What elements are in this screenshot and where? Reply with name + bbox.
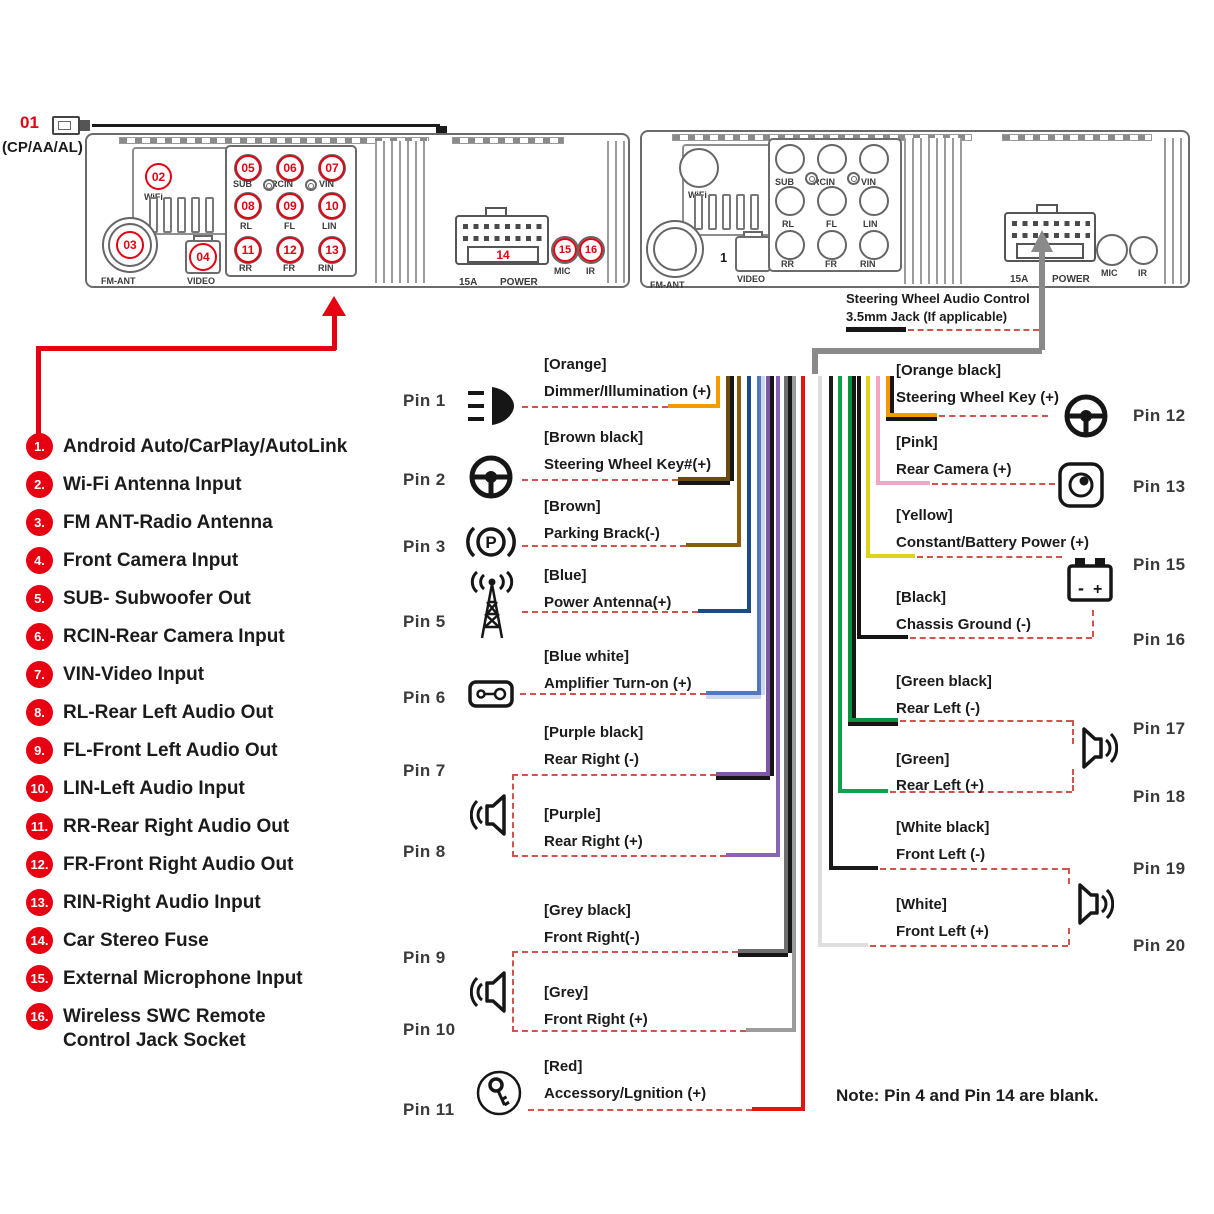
mic-label: MIC: [554, 266, 571, 276]
wire-pin12-arm: [886, 413, 937, 417]
pin15-label: Pin 15: [1133, 555, 1185, 575]
wire-pin17-vertical: [848, 376, 852, 722]
video-index: 1: [720, 250, 727, 265]
wire-pin2-vertical: [726, 376, 730, 481]
callout-05-sub: 05: [235, 155, 261, 181]
video-label: VIDEO: [737, 274, 765, 284]
ir-jack: [1129, 236, 1158, 265]
pin8-label: Pin 8: [403, 842, 446, 862]
dashed-leader: [512, 1030, 746, 1032]
rca-jack: [859, 186, 889, 216]
pin6-label: Pin 6: [403, 688, 446, 708]
wire-pin13-arm: [876, 481, 930, 485]
wifi-jack: [679, 148, 719, 188]
port-label-vin: VIN: [319, 179, 334, 189]
connector-slot: [736, 194, 745, 230]
wire-pin8-arm: [726, 853, 780, 857]
rca-jack: [859, 144, 889, 174]
connector-slot: [694, 194, 703, 230]
dashed-leader: [917, 556, 1062, 558]
heatsink-fins: [1164, 138, 1186, 284]
legend-text: Front Camera Input: [63, 550, 238, 572]
dashed-leader: [512, 855, 726, 857]
connector-slot: [750, 194, 759, 230]
swc-jack-bar: [846, 327, 906, 332]
pin7-color: [Purple black]: [544, 724, 643, 741]
wire-pin10-vertical: [792, 376, 796, 1032]
dashed-leader: [528, 1109, 752, 1111]
pin7-label: Pin 7: [403, 761, 446, 781]
ir-label: IR: [1138, 268, 1147, 278]
port-label-fr: FR: [825, 259, 837, 269]
wire-pin8-vertical: [776, 376, 780, 857]
pin13-function: Rear Camera (+): [896, 461, 1011, 478]
wire-pin6-arm: [706, 691, 761, 695]
pin3-label: Pin 3: [403, 537, 446, 557]
legend-badge: 5.: [26, 585, 53, 612]
pin17-label: Pin 17: [1133, 719, 1185, 739]
wire-pin15-vertical: [866, 376, 870, 558]
port-label-lin: LIN: [322, 221, 337, 231]
dashed-leader: [512, 951, 738, 953]
legend-text: Wireless SWC Remote: [63, 1006, 266, 1028]
legend-badge: 15.: [26, 965, 53, 992]
pin1-color: [Orange]: [544, 356, 607, 373]
legend-text: RIN-Right Audio Input: [63, 892, 261, 914]
heatsink-fins: [607, 141, 627, 283]
speaker-icon-pin17-18: [1070, 720, 1118, 776]
vent-strip: [1002, 134, 1152, 141]
swc-arrow-up-icon: [1031, 230, 1053, 252]
wire-pin5-arm: [698, 609, 751, 613]
swc-lead-vertical: [1039, 250, 1045, 350]
callout-01-caption: (CP/AA/AL): [2, 139, 83, 156]
rca-jack: [859, 230, 889, 260]
head-unit-rear-2: WiFi FM-ANT 1 VIDEO SUB RCIN VIN RL FL L…: [640, 130, 1190, 288]
trim-screw: [305, 179, 317, 191]
pin3-function: Parking Brack(-): [544, 525, 660, 542]
rca-jack: [817, 144, 847, 174]
legend-badge: 12.: [26, 851, 53, 878]
heatsink-fins: [375, 141, 431, 283]
wire-pin17-arm: [848, 718, 898, 722]
pin13-label: Pin 13: [1133, 477, 1185, 497]
legend-badge: 6.: [26, 623, 53, 650]
rca-jack: [817, 186, 847, 216]
wire-pin19-vertical: [829, 376, 833, 870]
legend-text: SUB- Subwoofer Out: [63, 588, 251, 610]
legend-text: FR-Front Right Audio Out: [63, 854, 293, 876]
svg-text:P: P: [485, 533, 496, 552]
head-unit-rear-1: 02 WiFi 03 FM-ANT 04 VIDEO 05 06 07 SUB …: [85, 133, 630, 288]
pin10-color: [Grey]: [544, 984, 588, 1001]
dashed-leader: [512, 774, 716, 776]
pin6-color: [Blue white]: [544, 648, 629, 665]
wire-pin20-vertical: [818, 376, 822, 947]
wire-pin12-vertical: [886, 376, 890, 417]
legend-text: Car Stereo Fuse: [63, 930, 209, 952]
wire-pin6-vertical: [757, 376, 761, 695]
fm-ant-label: FM-ANT: [650, 280, 685, 290]
connector-slot: [722, 194, 731, 230]
callout-14-fuse: 14: [496, 248, 509, 262]
wire-pin9-vertical: [784, 376, 788, 953]
pin16-color: [Black]: [896, 589, 946, 606]
battery-icon: - +: [1064, 550, 1116, 608]
wire-pin16-vertical: [857, 376, 861, 639]
callout-16-ir: 16: [579, 238, 603, 262]
steering-wheel-icon-pin12: [1060, 391, 1112, 441]
steering-wheel-icon: [466, 452, 516, 502]
legend-badge: 9.: [26, 737, 53, 764]
pin15-function: Constant/Battery Power (+): [896, 534, 1089, 551]
trim-screw: [805, 172, 818, 185]
pin20-label: Pin 20: [1133, 936, 1185, 956]
callout-15-mic: 15: [553, 238, 577, 262]
pin13-color: [Pink]: [896, 434, 938, 451]
callout-12-fr: 12: [277, 237, 303, 263]
headlight-icon: [462, 383, 518, 429]
connector-pin-row: [463, 236, 543, 241]
wire-pin20-arm: [818, 943, 868, 947]
pin2-color: [Brown black]: [544, 429, 643, 446]
port-label-fr: FR: [283, 263, 295, 273]
power-label: POWER: [1052, 274, 1090, 285]
usb-cable-line: [92, 124, 440, 127]
legend-badge: 14.: [26, 927, 53, 954]
pin1-label: Pin 1: [403, 391, 446, 411]
callout-09-fl: 09: [277, 193, 303, 219]
pin19-function: Front Left (-): [896, 846, 985, 863]
pin5-label: Pin 5: [403, 612, 446, 632]
svg-text:-: -: [1078, 578, 1084, 598]
heatsink-fins: [904, 138, 962, 284]
pin18-color: [Green]: [896, 751, 949, 768]
pin10-function: Front Right (+): [544, 1011, 648, 1028]
pin5-color: [Blue]: [544, 567, 587, 584]
connector-slot: [191, 197, 200, 233]
video-jack: [735, 236, 771, 272]
swc-lead-stub: [812, 348, 818, 374]
pin12-label: Pin 12: [1133, 406, 1185, 426]
parking-brake-icon: P: [464, 517, 518, 567]
trim-screw: [263, 179, 275, 191]
legend-text: External Microphone Input: [63, 968, 303, 990]
camera-icon: [1056, 458, 1106, 510]
wire-pin19-arm: [829, 866, 878, 870]
pin2-label: Pin 2: [403, 470, 446, 490]
wire-pin15-arm: [866, 554, 915, 558]
wiring-diagram: 01 (CP/AA/AL) 02 WiFi 03 FM-ANT 04 VIDEO…: [0, 0, 1214, 1214]
port-label-fl: FL: [826, 219, 837, 229]
legend-badge: 2.: [26, 471, 53, 498]
legend-badge: 10.: [26, 775, 53, 802]
pin18-label: Pin 18: [1133, 787, 1185, 807]
rca-jack: [775, 144, 805, 174]
callout-13-rin: 13: [319, 237, 345, 263]
pin10-label: Pin 10: [403, 1020, 455, 1040]
callout-01-number: 01: [20, 113, 39, 133]
callout-06-rcin: 06: [277, 155, 303, 181]
swc-dashed-line: [908, 329, 1039, 331]
wire-pin7-arm: [716, 772, 770, 776]
pin2-function: Steering Wheel Key#(+): [544, 456, 711, 473]
pin11-function: Accessory/Lgnition (+): [544, 1085, 706, 1102]
power-label: POWER: [500, 277, 538, 288]
swc-lead-horizontal: [812, 348, 1042, 354]
connector-slot: [205, 197, 214, 233]
wire-pin13-vertical: [876, 376, 880, 485]
wire-pin11-vertical: [801, 376, 805, 1111]
wire-pin9-arm: [738, 949, 788, 953]
wire-pin7-vertical: [766, 376, 770, 776]
port-label-lin: LIN: [863, 219, 878, 229]
legend-text: FM ANT-Radio Antenna: [63, 512, 273, 534]
pin7-function: Rear Right (-): [544, 751, 639, 768]
port-label-rin: RIN: [860, 259, 876, 269]
legend-badge: 1.: [26, 433, 53, 460]
pin12-color: [Orange black]: [896, 362, 1001, 379]
speaker-icon-pin9-10: [470, 965, 518, 1019]
fuse-slot: 14: [467, 246, 539, 263]
callout-02-wifi: 02: [145, 163, 172, 190]
port-label-sub: SUB: [233, 179, 252, 189]
wire-pin3-vertical: [737, 376, 741, 547]
connector-slot: [163, 197, 172, 233]
fuse-amp-label: 15A: [1010, 274, 1028, 285]
pin9-color: [Grey black]: [544, 902, 631, 919]
pin19-label: Pin 19: [1133, 859, 1185, 879]
legend-badge: 4.: [26, 547, 53, 574]
pin12-function: Steering Wheel Key (+): [896, 389, 1059, 406]
pin3-color: [Brown]: [544, 498, 601, 515]
port-label-rr: RR: [781, 259, 794, 269]
dashed-leader: [932, 483, 1055, 485]
dashed-leader: [522, 479, 678, 481]
legend-text: Android Auto/CarPlay/AutoLink: [63, 436, 347, 458]
ignition-key-icon: [474, 1068, 524, 1118]
pin9-function: Front Right(-): [544, 929, 640, 946]
legend-badge: 13.: [26, 889, 53, 916]
port-label-fl: FL: [284, 221, 295, 231]
pin17-color: [Green black]: [896, 673, 992, 690]
dashed-leader: [900, 720, 1072, 722]
pin16-label: Pin 16: [1133, 630, 1185, 650]
wire-pin16-arm: [857, 635, 908, 639]
speaker-icon-pin7-8: [470, 788, 518, 842]
connector-slot: [177, 197, 186, 233]
legend-line-horizontal: [36, 346, 336, 351]
blank-pins-note: Note: Pin 4 and Pin 14 are blank.: [836, 1086, 1099, 1106]
legend-line-vertical: [36, 346, 41, 434]
pin11-label: Pin 11: [403, 1100, 455, 1120]
callout-11-rr: 11: [235, 237, 261, 263]
pin6-function: Amplifier Turn-on (+): [544, 675, 692, 692]
trim-screw: [847, 172, 860, 185]
usb-plug-icon-inner: [58, 121, 71, 130]
mic-jack: [1096, 234, 1128, 266]
svg-text:+: +: [1093, 581, 1102, 598]
dashed-connector: [1092, 610, 1094, 637]
pin16-function: Chassis Ground (-): [896, 616, 1031, 633]
wire-pin10-arm: [746, 1028, 796, 1032]
swc-note-line2: 3.5mm Jack (If applicable): [846, 309, 1007, 324]
legend-badge: 7.: [26, 661, 53, 688]
rca-jack: [775, 186, 805, 216]
dashed-leader: [910, 637, 1092, 639]
port-label-rl: RL: [782, 219, 794, 229]
dashed-leader: [520, 693, 706, 695]
legend-badge: 8.: [26, 699, 53, 726]
legend-text: RR-Rear Right Audio Out: [63, 816, 289, 838]
legend-badge: 16.: [26, 1003, 53, 1030]
pin1-function: Dimmer/Illumination (+): [544, 383, 711, 400]
legend-text: LIN-Left Audio Input: [63, 778, 245, 800]
fm-ant-label: FM-ANT: [101, 276, 136, 286]
pin20-function: Front Left (+): [896, 923, 989, 940]
legend-text: RL-Rear Left Audio Out: [63, 702, 273, 724]
dashed-leader: [870, 945, 1068, 947]
pin18-function: Rear Left (+): [896, 777, 984, 794]
pin11-color: [Red]: [544, 1058, 582, 1075]
pin9-label: Pin 9: [403, 948, 446, 968]
legend-text: VIN-Video Input: [63, 664, 204, 686]
amplifier-icon: [466, 674, 516, 714]
legend-badge: 3.: [26, 509, 53, 536]
usb-plug-tip: [80, 120, 90, 131]
vent-strip: [452, 137, 564, 144]
ir-label: IR: [586, 266, 595, 276]
pin8-function: Rear Right (+): [544, 833, 643, 850]
pin8-color: [Purple]: [544, 806, 601, 823]
dashed-leader: [880, 868, 1068, 870]
callout-03-fm-ant: 03: [116, 231, 144, 259]
dashed-leader: [522, 611, 698, 613]
fuse-amp-label: 15A: [459, 277, 477, 288]
pin17-function: Rear Left (-): [896, 700, 980, 717]
legend-text-line2: Control Jack Socket: [63, 1030, 246, 1052]
connector-slot: [708, 194, 717, 230]
legend-badge: 11.: [26, 813, 53, 840]
wire-pin18-arm: [838, 789, 888, 793]
legend-text: FL-Front Left Audio Out: [63, 740, 278, 762]
wire-pin2-arm: [678, 477, 730, 481]
rca-jack: [817, 230, 847, 260]
mic-label: MIC: [1101, 268, 1118, 278]
callout-04-video: 04: [189, 243, 217, 271]
pin5-function: Power Antenna(+): [544, 594, 671, 611]
dashed-leader: [939, 415, 1048, 417]
connector-pin-row: [463, 224, 543, 229]
wire-pin3-arm: [686, 543, 741, 547]
legend-text: RCIN-Rear Camera Input: [63, 626, 285, 648]
wire-pin1-arm: [668, 404, 720, 408]
pin19-color: [White black]: [896, 819, 989, 836]
connector-pin-row: [1012, 221, 1090, 226]
legend-text: Wi-Fi Antenna Input: [63, 474, 242, 496]
antenna-icon: [464, 570, 520, 642]
dashed-leader: [522, 545, 686, 547]
legend-arrow-stem: [332, 312, 337, 350]
callout-07-vin: 07: [319, 155, 345, 181]
rca-jack: [775, 230, 805, 260]
port-label-rin: RIN: [318, 263, 334, 273]
pin20-color: [White]: [896, 896, 947, 913]
dashed-leader: [522, 406, 668, 408]
swc-note-line1: Steering Wheel Audio Control: [846, 291, 1030, 306]
port-label-rl: RL: [240, 221, 252, 231]
fm-ant-jack-inner: [653, 227, 697, 271]
speaker-icon-pin19-20: [1066, 876, 1114, 932]
wire-pin11-arm: [752, 1107, 805, 1111]
callout-08-rl: 08: [235, 193, 261, 219]
video-label: VIDEO: [187, 276, 215, 286]
port-label-rr: RR: [239, 263, 252, 273]
pin15-color: [Yellow]: [896, 507, 953, 524]
callout-10-lin: 10: [319, 193, 345, 219]
wire-pin18-vertical: [838, 376, 842, 793]
wire-pin5-vertical: [747, 376, 751, 613]
